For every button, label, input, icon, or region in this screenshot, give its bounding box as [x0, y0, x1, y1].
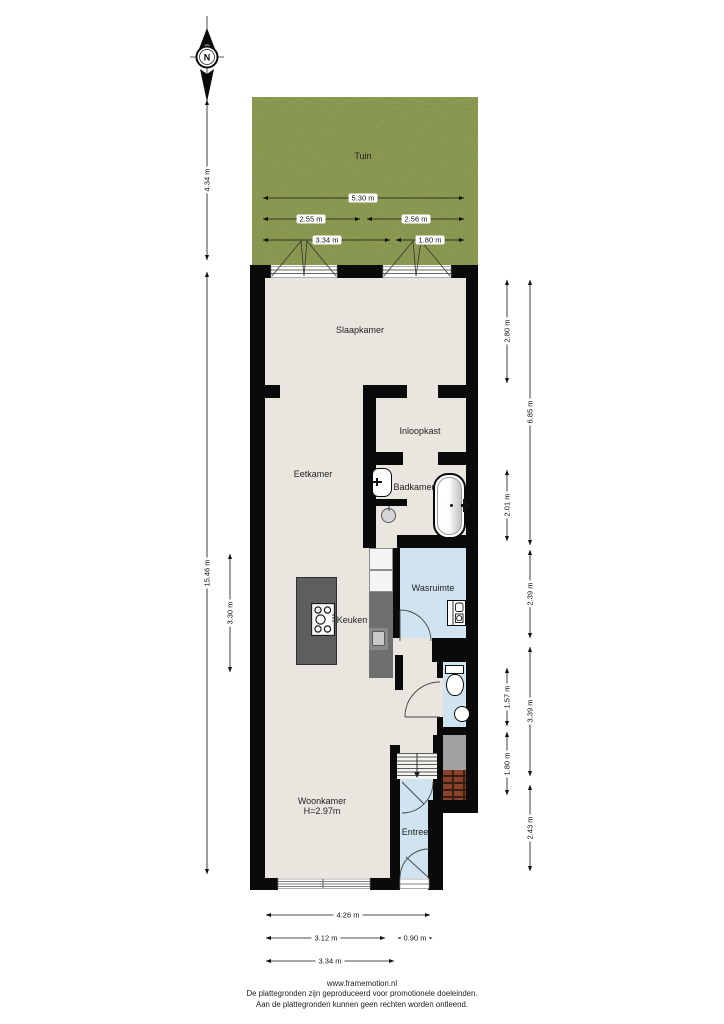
dim-right-bedroom: 2.80 m	[503, 318, 512, 345]
wall-top-seg3	[451, 265, 478, 278]
wall-top-seg1	[250, 265, 271, 278]
room-label-eetkamer: Eetkamer	[294, 469, 333, 479]
kitchen-cabinet-1	[369, 548, 393, 570]
staircase	[397, 753, 437, 779]
wall-left	[250, 265, 265, 890]
dim-right-entree: 2.43 m	[526, 815, 535, 842]
wall-bedroom-south-seg1	[265, 385, 280, 398]
dim-garden-depth: 4.34 m	[203, 167, 212, 194]
wall-top-seg2	[337, 265, 383, 278]
dim-bottom-entree: 0.90 m	[401, 934, 430, 943]
dim-right-bathroom: 2.01 m	[503, 492, 512, 519]
wall-counter-end	[395, 655, 403, 690]
wall-closet-bath-seg1	[376, 452, 403, 465]
shower-wall-stub	[371, 499, 407, 506]
wall-bottom-seg2	[370, 878, 400, 890]
kitchen-sink	[369, 628, 388, 650]
dim-garden-right-part: 1.80 m	[416, 236, 445, 245]
dim-garden-left-half: 2.55 m	[297, 215, 326, 224]
compass-north-icon: N	[185, 14, 230, 106]
dim-garden-right-half: 2.56 m	[402, 215, 431, 224]
dim-right-total-upper: 6.85 m	[526, 399, 535, 426]
footer-url: www.framemotion.nl	[0, 979, 724, 989]
wall-laundry-west	[393, 548, 400, 638]
wall-toilet-west-top	[437, 662, 443, 678]
room-label-badkamer: Badkamer	[393, 482, 434, 492]
dim-garden-total-width: 5.30 m	[349, 194, 378, 203]
footer-disclaimer-2: Aan de plattegronden kunnen geen rechten…	[0, 1000, 724, 1010]
bathtub-tap-stem	[463, 499, 466, 512]
kitchen-cabinet-2	[369, 570, 393, 592]
wall-bottom-seg3	[429, 878, 443, 890]
footer-disclaimer-1: De plattegronden zijn geproduceerd voor …	[0, 989, 724, 999]
exterior-cutout	[443, 813, 478, 890]
room-label-keuken: Keuken	[337, 615, 368, 625]
compass-n-label: N	[204, 53, 211, 63]
wall-closet-west	[363, 385, 376, 548]
bathtub-drain	[450, 504, 453, 507]
shower-drain-icon	[381, 508, 396, 523]
toilet-sink	[454, 706, 470, 722]
brick-patio	[443, 770, 466, 801]
woonkamer-name: Woonkamer	[298, 796, 346, 806]
kitchen-sink-basin	[372, 631, 385, 646]
room-label-entree: Entree	[402, 827, 429, 837]
wall-bottom-seg1	[250, 878, 278, 890]
bottom-window-and-door	[278, 879, 429, 889]
stove-icon	[311, 603, 335, 636]
toilet-bowl	[446, 674, 464, 696]
dim-house-depth: 15.46 m	[203, 557, 212, 588]
room-label-wasruimte: Wasruimte	[412, 583, 455, 593]
dim-kitchen: 3.30 m	[226, 600, 235, 627]
wall-bath-south	[397, 535, 478, 548]
dim-right-laundry: 2.39 m	[526, 581, 535, 608]
bathroom-sink-tap-stem	[376, 478, 378, 486]
room-label-tuin: Tuin	[354, 151, 371, 161]
room-label-inloopkast: Inloopkast	[399, 426, 440, 436]
footer: www.framemotion.nl De plattegronden zijn…	[0, 979, 724, 1010]
dim-right-hall: 3.39 m	[526, 698, 535, 725]
dim-right-toilet: 1.57 m	[503, 684, 512, 711]
dim-garden-left-part: 3.34 m	[313, 236, 342, 245]
wall-bedroom-south-seg3	[438, 385, 466, 398]
dim-bottom-livingroom: 3.12 m	[312, 934, 341, 943]
wall-closet-bath-seg2	[438, 452, 466, 465]
woonkamer-ceiling-height: H=2.97m	[304, 806, 341, 816]
toilet-tank	[445, 665, 464, 674]
floorplan-page: N	[0, 0, 724, 1024]
wall-toilet-south	[437, 727, 478, 735]
room-label-woonkamer: Woonkamer H=2.97m	[298, 796, 346, 816]
dim-right-patio: 1.80 m	[503, 751, 512, 778]
dim-bottom-livingroom2: 3.34 m	[316, 957, 345, 966]
washing-machine-icon	[447, 600, 466, 626]
room-label-slaapkamer: Slaapkamer	[336, 325, 384, 335]
dim-bottom-total: 4.26 m	[334, 911, 363, 920]
wall-laundry-south	[432, 638, 478, 662]
wall-patio-south	[428, 800, 478, 813]
patio-area	[443, 733, 466, 770]
